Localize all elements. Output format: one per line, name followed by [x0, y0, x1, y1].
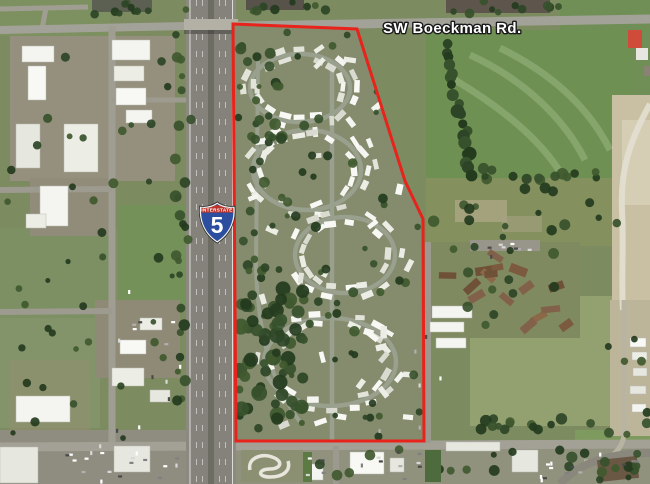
mobile-home — [356, 282, 367, 289]
tree — [276, 266, 283, 273]
road-label: SW Boeckman Rd. — [383, 20, 522, 37]
tree — [450, 245, 458, 253]
tree — [285, 410, 294, 419]
tree — [271, 413, 283, 425]
car — [379, 460, 383, 462]
tree — [349, 326, 360, 337]
tree — [256, 84, 261, 89]
tree — [529, 423, 537, 431]
mobile-home — [350, 405, 360, 411]
tree — [276, 133, 287, 144]
car — [546, 463, 550, 465]
tree — [90, 10, 99, 19]
aerial-imagery: INTERSTATE 5 SW Boeckman Rd. — [0, 0, 650, 484]
car — [322, 472, 326, 474]
tree — [170, 273, 175, 278]
building-roof — [120, 340, 146, 354]
building-roof — [112, 368, 144, 386]
tree — [85, 338, 92, 345]
building-roof — [630, 386, 646, 394]
tree — [555, 446, 564, 455]
tree — [299, 420, 305, 426]
tree — [592, 168, 600, 176]
tree — [251, 256, 258, 263]
tree — [376, 413, 383, 420]
building-roof — [64, 124, 98, 172]
tree — [414, 224, 421, 231]
tree — [180, 177, 191, 188]
tree — [67, 133, 73, 139]
tree — [321, 5, 330, 14]
tree — [363, 415, 368, 420]
car — [419, 426, 421, 430]
mobile-home — [293, 46, 304, 52]
car — [550, 462, 552, 466]
car — [171, 321, 175, 323]
tree — [462, 302, 472, 312]
car — [488, 247, 492, 249]
tree — [271, 399, 280, 408]
tree — [239, 237, 248, 246]
car — [502, 246, 506, 248]
tree — [637, 357, 646, 366]
car — [419, 383, 421, 387]
mobile-home — [354, 80, 360, 93]
building-roof — [26, 214, 46, 228]
tree — [508, 448, 516, 456]
tree — [466, 170, 478, 182]
tree — [175, 369, 181, 375]
tree — [164, 83, 171, 90]
building-roof — [114, 66, 144, 81]
tree — [329, 42, 337, 50]
tree — [265, 131, 274, 140]
tree — [546, 225, 557, 236]
tree — [61, 53, 70, 62]
tree — [30, 417, 39, 426]
tree — [373, 110, 378, 115]
tree — [251, 385, 267, 401]
tree — [464, 204, 474, 214]
tree — [465, 9, 475, 19]
building-roof — [22, 46, 54, 62]
tree — [283, 29, 291, 37]
tree — [631, 336, 638, 343]
car — [514, 247, 518, 249]
tree — [299, 121, 309, 131]
tree — [97, 228, 106, 237]
tree — [289, 323, 302, 336]
tree — [70, 400, 78, 408]
tree — [266, 355, 276, 365]
tree — [548, 186, 558, 196]
car — [138, 425, 140, 429]
tree — [146, 179, 152, 185]
tree — [108, 178, 118, 188]
tree — [597, 467, 607, 477]
tree — [362, 246, 367, 251]
car — [418, 453, 422, 455]
tree — [179, 73, 185, 79]
car — [414, 350, 416, 354]
tree — [325, 312, 332, 319]
car — [81, 471, 85, 473]
tree — [623, 431, 630, 438]
tree — [374, 432, 382, 440]
tree — [157, 57, 166, 66]
tree — [255, 115, 265, 125]
tree — [176, 271, 183, 278]
tree — [314, 297, 323, 306]
car — [100, 452, 104, 454]
boeckman-overpass — [184, 19, 238, 30]
tree — [625, 474, 631, 480]
tree — [261, 263, 270, 272]
car — [131, 457, 135, 459]
tree — [548, 248, 559, 259]
car — [622, 464, 626, 466]
tree — [502, 223, 509, 230]
tree — [256, 157, 264, 165]
map-image: INTERSTATE 5 SW Boeckman Rd. — [0, 0, 650, 484]
tree — [428, 215, 439, 226]
car — [143, 459, 147, 461]
mobile-home — [326, 283, 336, 289]
tree — [259, 177, 270, 188]
tree — [489, 310, 498, 319]
tree — [633, 450, 641, 458]
tree — [505, 417, 514, 426]
tree — [549, 282, 559, 292]
car — [490, 255, 492, 259]
tree — [65, 259, 70, 264]
condo-roof — [439, 272, 457, 279]
tree — [416, 408, 423, 415]
tree — [596, 215, 602, 221]
tree — [262, 307, 274, 319]
tree — [464, 215, 474, 225]
tree — [332, 309, 341, 318]
building-roof — [390, 458, 404, 472]
tree — [172, 395, 182, 405]
building-roof — [28, 66, 46, 100]
tree — [272, 348, 281, 357]
tree — [39, 384, 46, 391]
tree — [120, 435, 126, 441]
interstate-5-freeway — [184, 0, 238, 484]
car — [175, 464, 177, 468]
condo-roof — [484, 270, 498, 278]
car — [361, 463, 363, 467]
tree — [395, 276, 403, 284]
tree — [456, 109, 466, 119]
car — [540, 475, 542, 479]
tree — [279, 360, 287, 368]
tree — [520, 183, 531, 194]
tree — [170, 190, 182, 202]
tree — [586, 419, 595, 428]
tree — [547, 421, 555, 429]
tree — [409, 370, 418, 379]
car — [306, 474, 310, 476]
tree — [235, 43, 246, 54]
tree — [369, 399, 376, 406]
tree — [332, 413, 338, 419]
car — [543, 477, 547, 479]
car — [175, 457, 179, 459]
tree — [323, 151, 332, 160]
go-kart-track — [241, 450, 303, 482]
tree — [275, 314, 287, 326]
car — [599, 453, 601, 457]
car — [308, 457, 312, 459]
tree — [172, 31, 180, 39]
tree — [495, 9, 501, 15]
tree — [310, 173, 316, 179]
tree — [244, 353, 258, 367]
tree — [299, 168, 307, 176]
car — [425, 335, 427, 339]
car — [163, 465, 167, 467]
mobile-home — [294, 114, 305, 120]
building-roof — [446, 442, 500, 451]
tree — [306, 320, 314, 328]
building-roof — [0, 447, 38, 483]
tree — [184, 235, 193, 244]
tree — [176, 353, 184, 361]
car — [118, 475, 122, 477]
tree — [344, 468, 354, 478]
tree — [462, 465, 470, 473]
tree — [632, 462, 640, 470]
car — [118, 339, 120, 343]
car — [85, 458, 89, 460]
tree — [543, 1, 552, 10]
tree — [276, 333, 290, 347]
tree — [178, 86, 186, 94]
tree — [269, 118, 281, 130]
mobile-home — [380, 326, 387, 338]
tree — [175, 257, 182, 264]
tree — [251, 229, 258, 236]
car — [69, 454, 73, 456]
tree — [332, 470, 343, 481]
building-roof — [140, 318, 162, 330]
tree — [312, 2, 319, 9]
tree — [500, 234, 507, 241]
tree — [447, 89, 459, 101]
tree — [260, 366, 271, 377]
building-roof — [16, 396, 70, 422]
car — [565, 472, 569, 474]
tree — [580, 448, 590, 458]
tree — [321, 265, 330, 274]
tree — [522, 174, 532, 184]
tree — [299, 335, 307, 343]
car — [510, 243, 514, 245]
tree — [489, 6, 495, 12]
tree — [177, 304, 186, 313]
building-roof — [116, 88, 146, 105]
tree — [118, 126, 127, 135]
tree — [283, 197, 292, 206]
tree — [489, 465, 500, 476]
tree — [348, 158, 358, 168]
tree — [265, 48, 276, 59]
tree — [570, 169, 579, 178]
car — [116, 429, 118, 433]
car — [439, 376, 441, 380]
tree — [150, 338, 158, 346]
building-roof — [112, 40, 150, 60]
tree — [175, 210, 186, 221]
tree — [270, 5, 279, 14]
car — [321, 459, 325, 461]
car — [634, 460, 638, 462]
tree — [555, 3, 562, 10]
tree — [265, 112, 273, 120]
tree — [296, 285, 309, 298]
tree — [273, 375, 288, 390]
tree — [264, 61, 274, 71]
car — [578, 471, 582, 473]
mobile-home — [403, 414, 414, 420]
car — [136, 451, 138, 455]
tree — [174, 120, 185, 131]
tree — [237, 84, 243, 90]
interstate-number: 5 — [211, 212, 224, 238]
tree — [159, 354, 166, 361]
tree — [376, 288, 384, 296]
tree — [154, 253, 164, 263]
tree — [535, 210, 541, 216]
tree — [16, 285, 23, 292]
tree — [180, 375, 191, 386]
mobile-home — [355, 315, 365, 320]
tree — [43, 114, 52, 123]
tree — [491, 452, 497, 458]
tree — [121, 0, 128, 7]
tree — [463, 267, 473, 277]
tree — [252, 52, 261, 61]
tree — [240, 298, 251, 309]
tree — [23, 379, 31, 387]
car — [377, 457, 381, 459]
tree — [556, 413, 567, 424]
tree — [481, 321, 489, 329]
car — [73, 459, 77, 461]
tree — [79, 134, 86, 141]
car — [549, 467, 553, 469]
tree — [332, 357, 338, 363]
tree — [504, 275, 513, 284]
tree — [443, 39, 453, 49]
car — [99, 444, 101, 448]
car — [65, 454, 69, 456]
tree — [33, 141, 42, 150]
tree — [246, 267, 253, 274]
tree — [7, 166, 16, 175]
tree — [186, 115, 195, 124]
tree — [179, 220, 187, 228]
tree — [272, 82, 281, 91]
tree — [508, 172, 517, 181]
mobile-home — [324, 221, 336, 229]
tree — [605, 343, 612, 350]
tree — [249, 166, 257, 174]
tree — [611, 464, 619, 472]
tree — [613, 219, 621, 227]
tree — [512, 2, 519, 9]
mobile-home — [251, 79, 257, 89]
hedge — [425, 450, 441, 482]
tree — [285, 213, 290, 218]
car — [100, 480, 102, 484]
tree — [179, 319, 190, 330]
tree — [450, 8, 456, 14]
car — [403, 478, 407, 480]
tree — [518, 5, 527, 14]
tree — [243, 57, 252, 66]
tree — [235, 114, 242, 121]
tree — [308, 151, 316, 159]
tree — [286, 396, 298, 408]
tree — [73, 346, 79, 352]
building-roof — [436, 338, 466, 348]
tree — [365, 450, 376, 461]
tree — [562, 172, 571, 181]
tree — [311, 222, 321, 232]
tree — [99, 253, 106, 260]
tree — [378, 194, 388, 204]
car — [168, 397, 170, 401]
car — [398, 465, 402, 467]
car — [179, 365, 181, 369]
car — [128, 290, 130, 294]
mobile-home — [326, 408, 337, 413]
car — [108, 471, 112, 473]
tree — [79, 302, 87, 310]
tree — [134, 7, 142, 15]
car — [151, 375, 153, 379]
car — [417, 462, 421, 464]
tree — [117, 382, 124, 389]
tree — [292, 305, 305, 318]
tree — [183, 6, 190, 13]
tree — [447, 467, 455, 475]
tree — [128, 122, 134, 128]
car — [418, 466, 422, 468]
tree — [252, 6, 262, 16]
car — [499, 244, 503, 246]
tree — [303, 3, 311, 11]
car — [138, 321, 142, 323]
tree — [89, 196, 97, 204]
tree — [447, 80, 456, 89]
tree — [559, 219, 570, 230]
tree — [269, 223, 275, 229]
tree — [240, 371, 251, 382]
tree — [478, 163, 489, 174]
tree — [566, 452, 577, 463]
building-roof — [430, 322, 464, 332]
tree — [4, 198, 11, 205]
tree — [147, 119, 156, 128]
tree — [275, 293, 287, 305]
tree — [348, 350, 353, 355]
mobile-home — [308, 311, 320, 318]
mobile-home — [384, 247, 391, 260]
